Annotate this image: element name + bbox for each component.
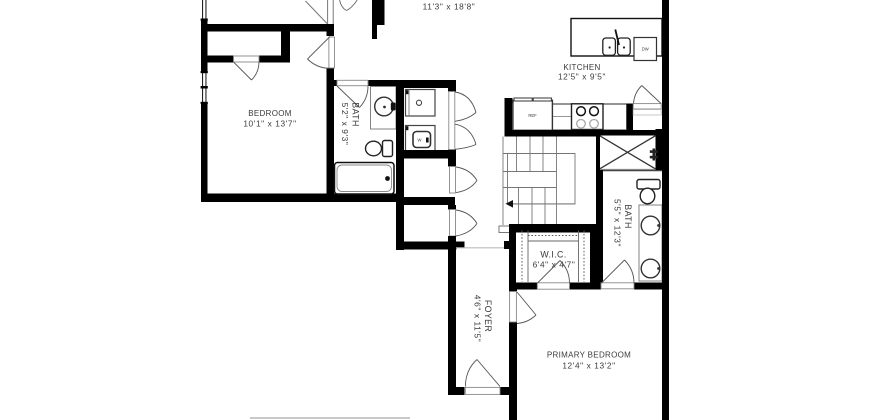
svg-text:W.I.C.: W.I.C. — [540, 250, 566, 260]
svg-text:REF: REF — [528, 113, 537, 118]
svg-text:10'1" x 13'7": 10'1" x 13'7" — [243, 119, 296, 129]
svg-text:W: W — [418, 138, 422, 143]
svg-text:5'5" x 12'3": 5'5" x 12'3" — [613, 199, 623, 247]
svg-text:4'6" x 11'5": 4'6" x 11'5" — [473, 295, 483, 342]
svg-text:DW: DW — [642, 47, 649, 52]
svg-text:PRIMARY BEDROOM: PRIMARY BEDROOM — [547, 351, 631, 360]
svg-text:BATH: BATH — [623, 204, 633, 228]
svg-text:BEDROOM: BEDROOM — [248, 109, 291, 118]
svg-text:BATH: BATH — [351, 102, 361, 126]
svg-text:11'3" x 18'8": 11'3" x 18'8" — [423, 2, 476, 12]
svg-text:FOYER: FOYER — [483, 300, 493, 332]
svg-text:12'4" x 13'2": 12'4" x 13'2" — [562, 361, 615, 371]
svg-text:12'5" x 9'5": 12'5" x 9'5" — [558, 72, 606, 82]
svg-text:6'4" x 4'7": 6'4" x 4'7" — [533, 260, 576, 270]
svg-text:5'2" x 9'3": 5'2" x 9'3" — [340, 103, 350, 146]
